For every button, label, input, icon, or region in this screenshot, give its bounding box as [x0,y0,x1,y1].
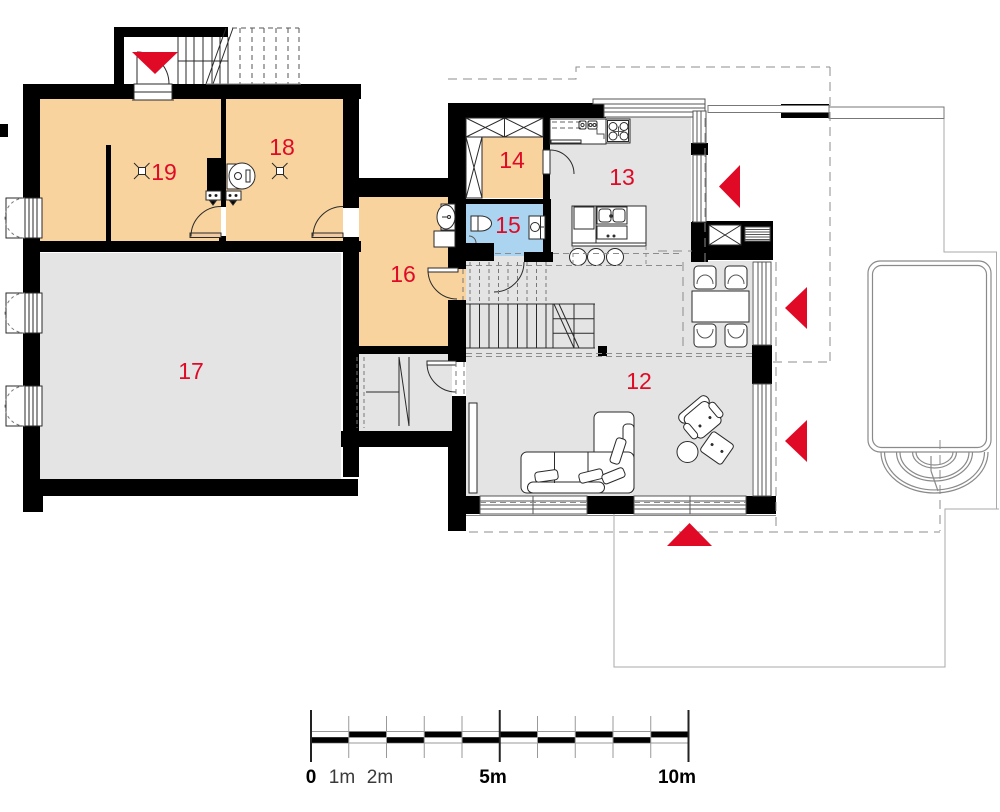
svg-text:15: 15 [495,212,521,238]
svg-text:17: 17 [178,358,204,384]
svg-text:10m: 10m [658,767,696,788]
svg-text:12: 12 [626,368,652,394]
svg-text:16: 16 [390,261,416,287]
svg-text:14: 14 [499,147,525,173]
svg-text:18: 18 [269,134,295,160]
svg-text:0: 0 [306,767,317,788]
svg-text:5m: 5m [479,767,506,788]
svg-text:19: 19 [151,159,177,185]
svg-text:13: 13 [609,164,635,190]
svg-text:2m: 2m [367,767,393,788]
svg-text:1m: 1m [329,767,355,788]
